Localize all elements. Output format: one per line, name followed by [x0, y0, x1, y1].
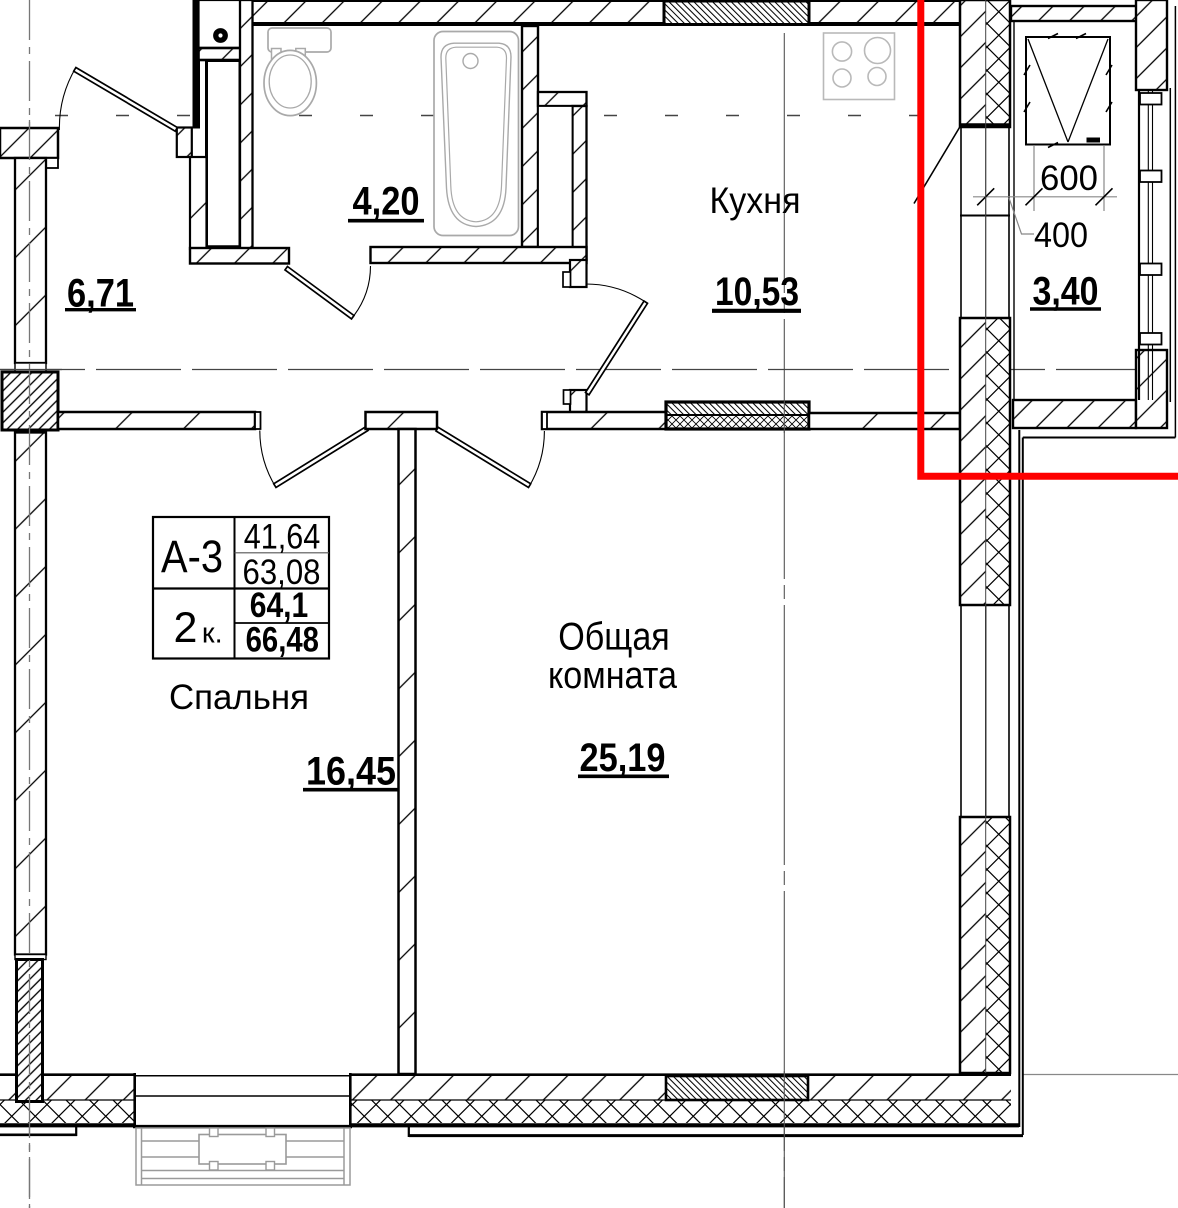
svg-text:25,19: 25,19 [580, 736, 666, 780]
svg-text:10,53: 10,53 [715, 270, 799, 314]
svg-text:А-3: А-3 [161, 531, 223, 582]
svg-text:комната: комната [548, 655, 678, 697]
svg-text:2: 2 [174, 604, 198, 652]
svg-text:4,20: 4,20 [353, 180, 420, 224]
svg-text:600: 600 [1040, 159, 1098, 198]
svg-text:Кухня: Кухня [710, 180, 801, 221]
svg-text:3,40: 3,40 [1033, 270, 1099, 314]
svg-text:к.: к. [202, 618, 223, 650]
svg-text:Общая: Общая [558, 616, 670, 659]
svg-text:Спальня: Спальня [169, 678, 309, 717]
svg-text:16,45: 16,45 [306, 750, 396, 794]
svg-text:66,48: 66,48 [246, 621, 319, 660]
svg-text:400: 400 [1034, 216, 1088, 255]
svg-text:64,1: 64,1 [250, 586, 309, 625]
svg-text:41,64: 41,64 [244, 518, 321, 557]
